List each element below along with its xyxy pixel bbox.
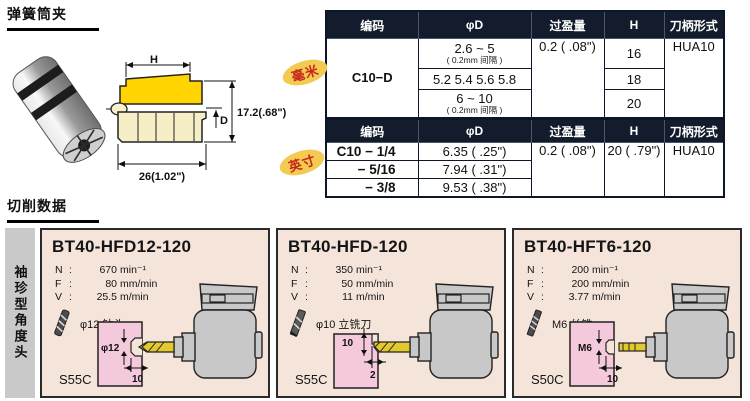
mm-h-cell: 18 <box>604 69 664 90</box>
collet-dimension-drawing: H D 17.2(.68") 26(1.02") <box>106 54 294 190</box>
mm-row-1: C10−D 2.6 ~ 5 ( 0.2mm 间隔 ) 0.2 ( .08") 1… <box>326 39 724 69</box>
mm-col-h: H <box>604 11 664 39</box>
mm-col-diameter: φD <box>418 11 531 39</box>
spindle-nose <box>654 333 667 361</box>
inch-diameter-cell: 9.53 ( .38") <box>418 179 531 197</box>
mm-h-cell: 16 <box>604 39 664 69</box>
param-colon: : <box>541 291 553 305</box>
param-colon: : <box>541 278 553 292</box>
catalog-page: 弹簧筒夹 <box>0 0 750 401</box>
param-unit: min⁻¹ <box>589 264 629 278</box>
collet-section-title: 弹簧筒夹 <box>7 4 99 31</box>
inch-code-cell: C10 − 1/4 <box>326 143 418 161</box>
mm-header-row: 编码 φD 过盈量 H 刀柄形式 <box>326 11 724 39</box>
panel-title: BT40-HFD12-120 <box>52 237 191 257</box>
workpiece-material: S50C <box>531 372 564 387</box>
cutting-panel-tap: BT40-HFT6-120 N:200min⁻¹ F:200mm/min V:3… <box>512 228 742 398</box>
workpiece-material: S55C <box>59 372 92 387</box>
tapped-hole <box>606 340 614 354</box>
param-colon: : <box>69 278 81 292</box>
collet-body <box>10 52 110 170</box>
tap-icon <box>525 308 543 340</box>
dim-thread-depth: 10 <box>607 374 619 385</box>
milling-diagram: 10 2 <box>330 282 502 394</box>
inch-code-cell: − 3/8 <box>326 179 418 197</box>
inch-col-h: H <box>604 119 664 143</box>
panel-title: BT40-HFT6-120 <box>524 237 652 257</box>
param-row-n: N:350min⁻¹ <box>291 264 393 278</box>
param-value: 200 <box>553 264 589 278</box>
angle-head-shank <box>672 284 729 310</box>
angle-head-shank <box>200 284 257 310</box>
angle-head-shank <box>436 284 493 310</box>
dim-cut-depth: 10 <box>342 338 354 349</box>
angle-head-body <box>194 310 256 378</box>
param-colon: : <box>305 264 317 278</box>
spindle-nose <box>182 333 195 361</box>
end-mill-icon <box>289 308 307 340</box>
mm-interference-cell: 0.2 ( .08") <box>531 39 604 118</box>
dim-height-label: 17.2(.68") <box>237 107 287 119</box>
mm-col-interference: 过盈量 <box>531 11 604 39</box>
mm-shank-cell: HUA10 <box>664 39 724 118</box>
inch-col-shank: 刀柄形式 <box>664 119 724 143</box>
mm-diameter-cell: 6 ~ 10 ( 0.2mm 间隔 ) <box>418 90 531 118</box>
drill-bit-icon <box>53 308 71 340</box>
param-colon: : <box>305 278 317 292</box>
diameter-range: 6 ~ 10 <box>419 92 531 106</box>
dim-h-label: H <box>150 54 158 66</box>
param-colon: : <box>69 264 81 278</box>
cutting-section-title: 切削数据 <box>7 196 99 223</box>
tapping-diagram: M6 10 <box>566 282 738 394</box>
inch-shank-cell: HUA10 <box>664 143 724 197</box>
param-key: F <box>55 278 69 292</box>
inch-header-row: 编码 φD 过盈量 H 刀柄形式 <box>326 119 724 143</box>
diameter-step-note: ( 0.2mm 间隔 ) <box>419 56 531 65</box>
diameter-step-note: ( 0.2mm 间隔 ) <box>419 106 531 115</box>
param-colon: : <box>305 291 317 305</box>
sidebar-category: 袖珍型角度头 <box>5 228 35 398</box>
mm-col-shank: 刀柄形式 <box>664 11 724 39</box>
inch-col-code: 编码 <box>326 119 418 143</box>
drill-tool <box>139 342 174 352</box>
param-colon: : <box>69 291 81 305</box>
angle-head-body <box>430 310 492 378</box>
param-key: F <box>527 278 541 292</box>
inch-col-diameter: φD <box>418 119 531 143</box>
inch-spec-table: 编码 φD 过盈量 H 刀柄形式 C10 − 1/4 6.35 ( .25") … <box>325 118 725 198</box>
mm-code-cell: C10−D <box>326 39 418 118</box>
cutting-panel-endmill: BT40-HFD-120 N:350min⁻¹ F:50mm/min V:11m… <box>276 228 506 398</box>
inch-code-cell: − 5/16 <box>326 161 418 179</box>
dim-thread-size: M6 <box>578 343 592 354</box>
param-value: 350 <box>317 264 353 278</box>
param-key: V <box>291 291 305 305</box>
param-unit: min⁻¹ <box>353 264 393 278</box>
workpiece-material: S55C <box>295 372 328 387</box>
param-row-n: N:200min⁻¹ <box>527 264 629 278</box>
param-unit: min⁻¹ <box>117 264 157 278</box>
dim-hole-depth: 10 <box>132 374 144 385</box>
param-colon: : <box>541 264 553 278</box>
dim-d-label: D <box>220 115 228 127</box>
param-key: V <box>527 291 541 305</box>
drilling-diagram: φ12 10 <box>94 282 266 394</box>
mm-h-cell: 20 <box>604 90 664 118</box>
cutting-panel-drill: BT40-HFD12-120 N:670min⁻¹ F:80mm/min V:2… <box>40 228 270 398</box>
param-key: F <box>291 278 305 292</box>
panel-title: BT40-HFD-120 <box>288 237 408 257</box>
param-key: N <box>55 264 69 278</box>
collet-upper-section <box>120 74 202 104</box>
param-key: V <box>55 291 69 305</box>
inch-col-interference: 过盈量 <box>531 119 604 143</box>
param-row-n: N:670min⁻¹ <box>55 264 157 278</box>
dim-width-label: 26(1.02") <box>139 171 186 183</box>
inch-row-1: C10 − 1/4 6.35 ( .25") 0.2 ( .08") 20 ( … <box>326 143 724 161</box>
diameter-range: 2.6 ~ 5 <box>419 42 531 56</box>
mm-col-code: 编码 <box>326 11 418 39</box>
dim-cut-width: 2 <box>370 370 376 381</box>
mm-diameter-cell: 2.6 ~ 5 ( 0.2mm 间隔 ) <box>418 39 531 69</box>
inch-interference-cell: 0.2 ( .08") <box>531 143 604 197</box>
dim-hole-diameter: φ12 <box>101 343 120 354</box>
inch-diameter-cell: 6.35 ( .25") <box>418 143 531 161</box>
inch-diameter-cell: 7.94 ( .31") <box>418 161 531 179</box>
param-key: N <box>527 264 541 278</box>
angle-head-body <box>666 310 728 378</box>
spindle-nose <box>418 333 431 361</box>
param-key: N <box>291 264 305 278</box>
collet-photo <box>10 52 110 170</box>
param-value: 670 <box>81 264 117 278</box>
sidebar-category-label: 袖珍型角度头 <box>11 265 30 361</box>
mm-spec-table: 编码 φD 过盈量 H 刀柄形式 C10−D 2.6 ~ 5 ( 0.2mm 间… <box>325 10 725 119</box>
mm-diameter-cell: 5.2 5.4 5.6 5.8 <box>418 69 531 90</box>
collet-lower-section <box>118 112 206 142</box>
inch-h-cell: 20 ( .79") <box>604 143 664 197</box>
